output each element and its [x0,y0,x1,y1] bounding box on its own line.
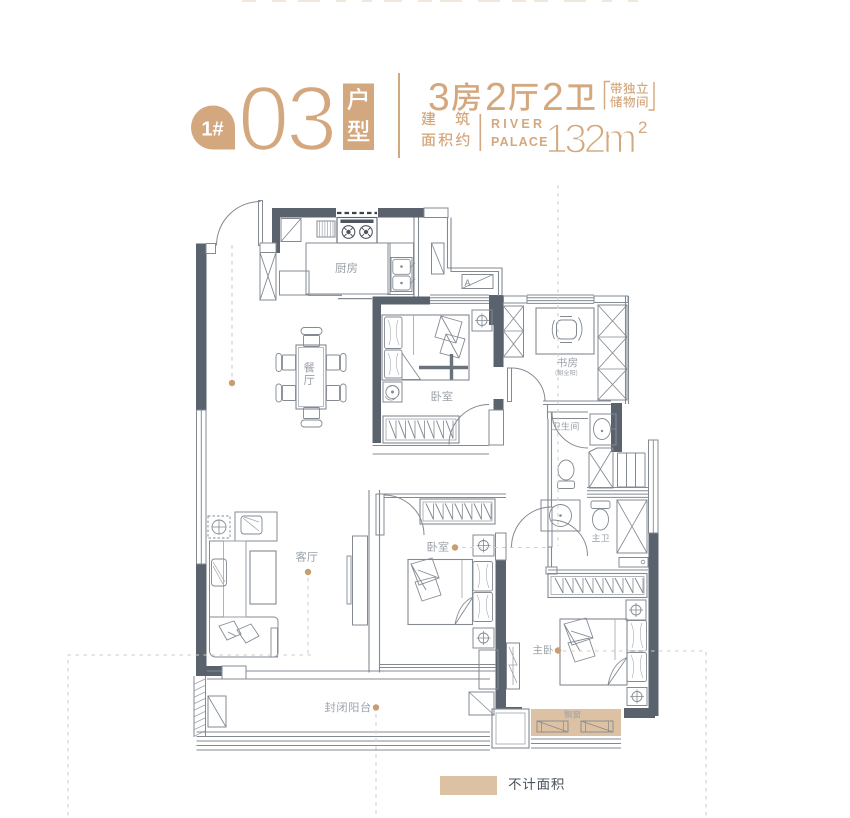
svg-text:RIVER: RIVER [491,117,545,131]
svg-text:PALACE: PALACE [491,135,549,149]
svg-text:2: 2 [485,76,507,119]
svg-text:2: 2 [542,76,564,119]
svg-text:3: 3 [428,76,450,119]
svg-text:2: 2 [638,118,647,137]
svg-text:132m: 132m [545,116,635,162]
svg-text:A: A [465,278,471,288]
svg-text:1#: 1# [201,119,223,141]
svg-text:03: 03 [238,68,334,170]
